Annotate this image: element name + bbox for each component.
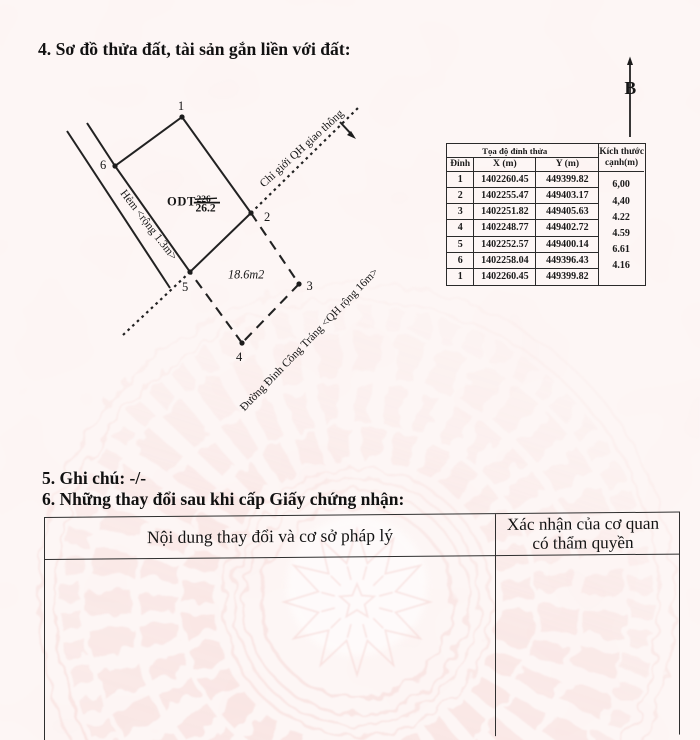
svg-text:ODT: ODT	[167, 195, 196, 209]
svg-text:6: 6	[100, 158, 106, 172]
svg-text:1: 1	[178, 99, 184, 113]
svg-text:5: 5	[182, 280, 188, 294]
svg-text:26.2: 26.2	[196, 203, 216, 215]
svg-text:B: B	[625, 78, 637, 98]
svg-text:18.6m2: 18.6m2	[228, 268, 264, 282]
svg-text:4: 4	[236, 350, 243, 364]
svg-text:2: 2	[264, 210, 270, 224]
svg-text:Chỉ giới QH giao thông: Chỉ giới QH giao thông	[258, 107, 347, 190]
svg-text:3: 3	[307, 279, 313, 293]
